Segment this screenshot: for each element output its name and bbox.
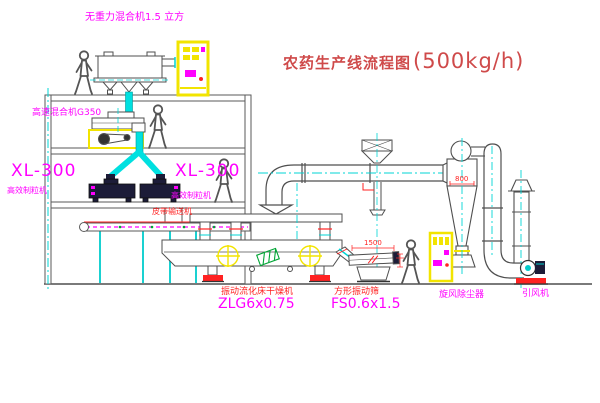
person-ground: [402, 240, 419, 283]
gravity-mixer: [90, 52, 175, 114]
control-cabinet-2: [430, 233, 452, 281]
person-second-floor: [149, 105, 166, 148]
dimension-sieve-1500: 1500: [364, 240, 382, 247]
label-granulator-left-name: 高效制粒机: [7, 187, 47, 195]
exhaust-duct: [258, 163, 452, 240]
induced-draft-fan: [514, 261, 548, 285]
dimension-cyclone-800: 800: [455, 176, 468, 183]
label-granulator-right-name: 高效制粒机: [171, 192, 211, 200]
person-top-floor: [75, 51, 92, 94]
flow-diagram: 农药生产线流程图 (500kg/h) 无重力混合机1.5 立方 高速混合机G35…: [0, 0, 600, 403]
control-cabinet-1: [178, 42, 208, 95]
page-title: 农药生产线流程图 (500kg/h): [283, 49, 524, 73]
title-text: 农药生产线流程图: [283, 52, 411, 73]
label-granulator-right-model: XL-300: [175, 163, 240, 180]
label-sieve-model: FS0.6x1.5: [331, 297, 401, 311]
label-granulator-left-model: XL-300: [11, 163, 76, 180]
label-belt-conveyor: 皮带输送机: [152, 208, 192, 216]
label-dryer-model: ZLG6x0.75: [218, 297, 295, 311]
title-capacity: (500kg/h): [413, 49, 524, 73]
belt-conveyor: [80, 222, 251, 232]
label-cyclone-name: 旋风除尘器: [439, 291, 484, 300]
granulator-left: [89, 179, 135, 202]
label-fan-name: 引风机: [522, 290, 549, 299]
vibrating-sieve: [336, 245, 404, 282]
label-gravity-mixer: 无重力混合机1.5 立方: [85, 13, 184, 23]
label-high-speed-mixer: 高速混合机G350: [32, 109, 101, 118]
